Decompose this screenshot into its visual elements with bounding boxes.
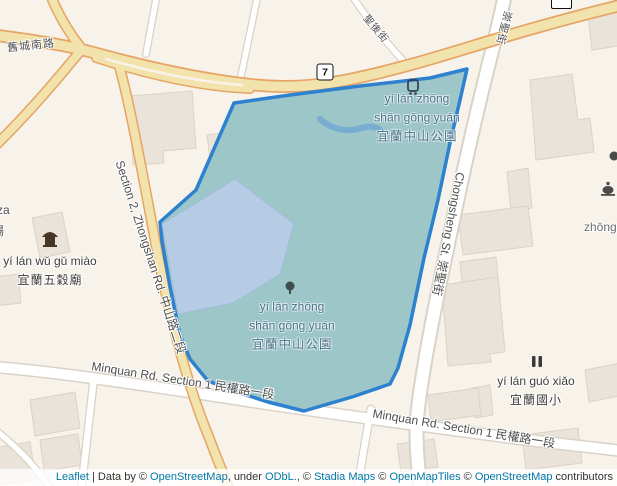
attribution-bar: Leaflet | Data by © OpenStreetMap, under… (0, 469, 617, 486)
osm-link[interactable]: OpenStreetMap (150, 471, 228, 483)
route-shield-partial (551, 0, 572, 9)
attribution-separator: | (89, 471, 98, 483)
stadia-maps-link[interactable]: Stadia Maps (314, 471, 375, 483)
attribution-contributors: contributors (552, 471, 613, 483)
map-viewport[interactable]: 7 舊城南路 聖後街 崇聖街 Chongsheng St. 崇聖街 Sectio… (0, 0, 617, 486)
attribution-c1: , © (297, 471, 314, 483)
odbl-link[interactable]: ODbL. (265, 471, 297, 483)
route-7-shield: 7 (317, 64, 334, 81)
map-canvas[interactable] (0, 0, 617, 486)
osm-contributors-link[interactable]: OpenStreetMap (475, 471, 553, 483)
attribution-under: , under (228, 471, 265, 483)
attribution-c3: © (461, 471, 475, 483)
leaflet-link[interactable]: Leaflet (56, 471, 89, 483)
openmaptiles-link[interactable]: OpenMapTiles (389, 471, 460, 483)
attribution-c2: © (375, 471, 389, 483)
route-7-number: 7 (322, 66, 328, 78)
attribution-data-by: Data by © (98, 471, 150, 483)
